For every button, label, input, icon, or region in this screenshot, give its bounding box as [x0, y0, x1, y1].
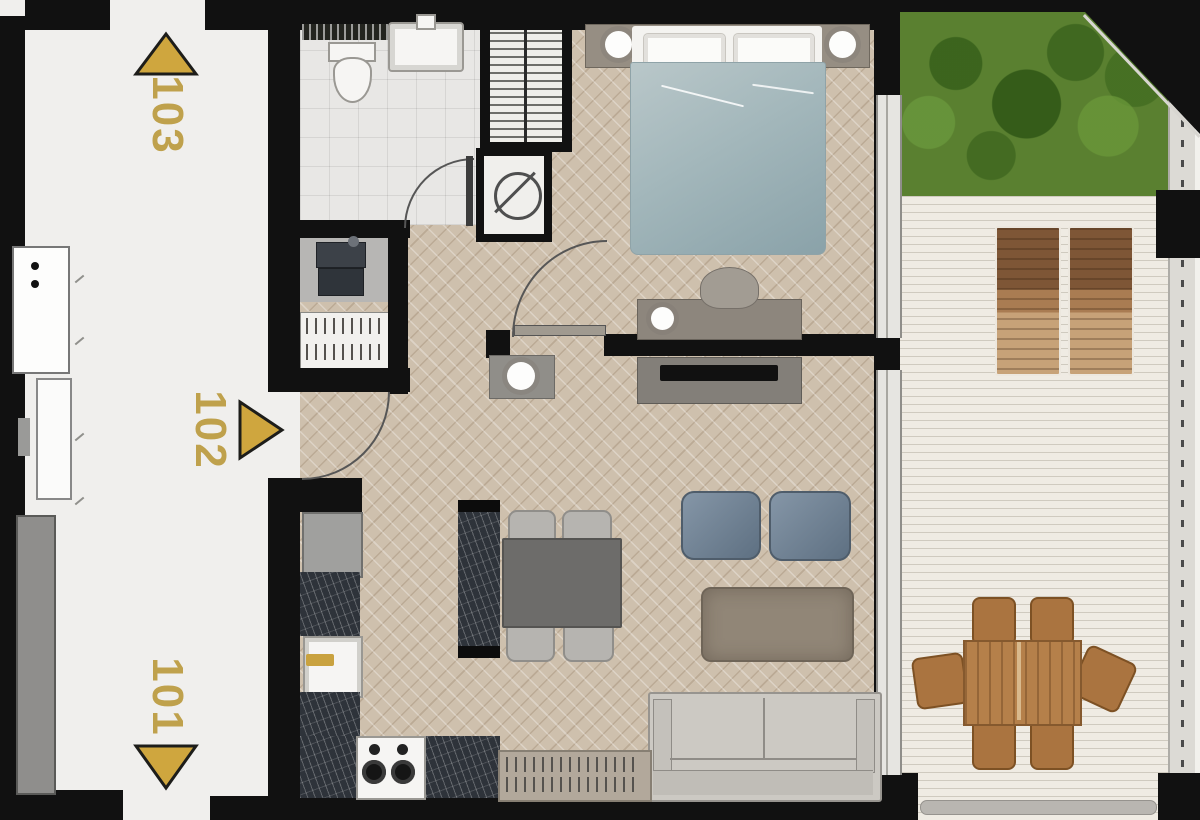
service-shaft-panel: [16, 515, 56, 795]
unit-101-arrow-down-icon: [130, 740, 202, 794]
stove-burner-left: [362, 760, 386, 784]
desk-lamp: [651, 307, 674, 330]
wall-shelving-right: [388, 220, 408, 394]
neighbor-door-dot-1: [31, 262, 39, 270]
outdoor-table-seam: [1017, 642, 1021, 720]
wall-niche-panel: [18, 418, 30, 456]
corridor-corner-gap: [0, 0, 25, 16]
wall-corridor-right-upper: [268, 0, 300, 370]
side-table-lamp: [507, 362, 535, 390]
sofa-arm-left: [653, 699, 672, 773]
bathroom-radiator: [302, 24, 388, 40]
railing-dashed-line: [1181, 20, 1184, 816]
outdoor-dining-table: [963, 640, 1082, 726]
kitchen-counter-upper: [300, 572, 360, 636]
bedroom-door-leaf: [514, 325, 606, 336]
island-cap-top: [458, 500, 500, 512]
unit-103-label: 103: [125, 80, 209, 150]
kitchen-counter-lower: [300, 692, 360, 738]
sink-tap: [416, 14, 436, 30]
unit-102-arrow-right-icon: [234, 396, 288, 464]
wall-balcony-bottom-left: [878, 773, 918, 820]
neighbor-door-dot-2: [31, 280, 39, 288]
sofa-center-line: [763, 698, 765, 760]
shower-drain-icon: [494, 172, 542, 220]
stove-knob-right: [397, 744, 408, 755]
stove-knob-left: [369, 744, 380, 755]
unit-101-label: 101: [125, 662, 209, 732]
sun-lounger-left: [995, 226, 1061, 376]
shelving-row-top: [306, 318, 382, 334]
desk-chair: [700, 267, 759, 309]
kitchen-faucet-gold: [306, 654, 334, 666]
wall-top-left: [25, 0, 110, 30]
bookshelf-row-top: [506, 757, 640, 772]
dining-table: [502, 538, 622, 628]
unit-103-arrow-up-icon: [130, 28, 202, 82]
nightstand-lamp-left: [605, 31, 632, 58]
island-cap-bottom: [458, 646, 500, 658]
shelving-row-bottom: [306, 344, 382, 360]
balcony-step: [920, 800, 1157, 815]
neighbor-door-upper: [12, 246, 70, 374]
tv-screen: [660, 365, 778, 381]
sofa-back: [653, 770, 873, 795]
corridor-top-opening: [110, 0, 205, 30]
stove-burner-right: [391, 760, 415, 784]
apartment-floor-plan: 103 102 101: [0, 0, 1200, 820]
wall-balcony-bottom-right: [1158, 773, 1200, 820]
washer: [316, 242, 366, 268]
outdoor-chair-top-left: [972, 597, 1016, 646]
bathroom-door-leaf: [466, 156, 473, 226]
corridor-bottom-opening: [123, 790, 210, 820]
bedroom-window: [876, 95, 902, 338]
sofa: [648, 692, 882, 802]
wall-corridor-right-lower: [268, 478, 300, 820]
bookshelf-row-bottom: [506, 777, 640, 792]
outdoor-chair-left: [911, 652, 970, 711]
nightstand-lamp-right: [829, 31, 856, 58]
pouf-left: [681, 491, 761, 560]
pouf-right: [769, 491, 851, 561]
kitchen-sink: [303, 636, 363, 698]
laundry-knob: [348, 236, 359, 247]
kitchen-island: [458, 500, 500, 658]
dryer: [318, 268, 364, 296]
sun-lounger-right: [1068, 226, 1134, 376]
neighbor-door-lower: [36, 378, 72, 500]
sofa-arm-right: [856, 699, 875, 773]
closet-divider: [524, 16, 527, 142]
wall-bedroom-stub: [486, 330, 510, 358]
wall-kitchen-top: [290, 478, 362, 512]
coffee-table: [701, 587, 854, 662]
wall-top-balcony: [880, 0, 1200, 12]
fridge: [302, 512, 363, 578]
balcony-railing-column: [1156, 190, 1200, 258]
outdoor-chair-top-right: [1030, 597, 1074, 646]
